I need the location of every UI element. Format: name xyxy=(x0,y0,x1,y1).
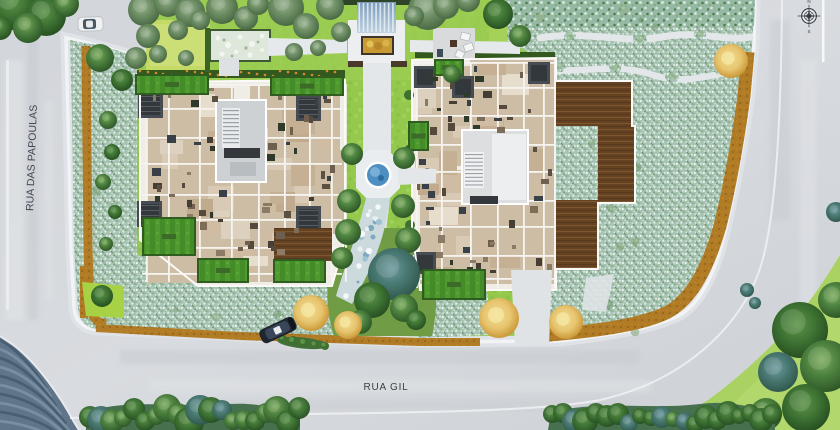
svg-text:RUA GIL: RUA GIL xyxy=(363,382,408,393)
svg-text:N: N xyxy=(807,0,810,4)
svg-text:S: S xyxy=(807,29,810,34)
